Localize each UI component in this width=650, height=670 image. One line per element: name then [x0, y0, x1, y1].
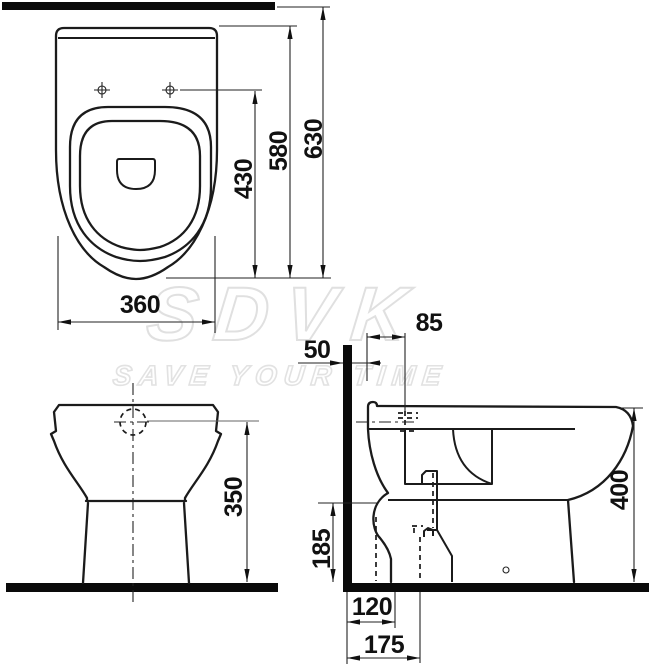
dim-185: 185	[308, 503, 336, 582]
dim-label-630: 630	[300, 119, 328, 159]
technical-drawing-page: SDVK SAVE YOUR TIME	[0, 0, 650, 670]
dim-350: 350	[220, 422, 250, 582]
dim-label-580: 580	[265, 131, 293, 171]
pedestal-hole-icon	[503, 567, 509, 573]
watermark-tagline: SAVE YOUR TIME	[111, 360, 449, 391]
flush-channel-box	[405, 429, 492, 484]
dim-label-175: 175	[364, 631, 405, 659]
floor-bar-side-view	[343, 583, 649, 592]
dim-label-350: 350	[220, 477, 248, 517]
dim-175: 175	[347, 631, 420, 661]
toilet-body-front-view	[51, 405, 221, 501]
dim-label-185: 185	[308, 528, 336, 569]
dim-430: 430	[230, 91, 258, 278]
drain-outline	[117, 159, 155, 189]
pedestal-front-view	[83, 503, 189, 583]
dim-label-85: 85	[416, 309, 443, 337]
fixing-hole-right-icon	[162, 82, 178, 98]
bowl-rim-outline	[80, 121, 200, 250]
front-view: 350	[6, 383, 278, 604]
toilet-dimension-drawing: SDVK SAVE YOUR TIME	[0, 0, 650, 670]
wall-bar-side-view	[343, 345, 352, 585]
dim-label-430: 430	[230, 159, 258, 199]
fixing-hole-left-icon	[94, 82, 110, 98]
side-view: 50 85 400 185 120	[298, 309, 649, 664]
dim-label-360: 360	[120, 291, 160, 319]
wall-bar-top-view	[2, 2, 275, 10]
dim-120: 120	[347, 593, 395, 625]
dim-label-120: 120	[352, 593, 392, 621]
dim-630: 630	[300, 7, 328, 278]
dim-580: 580	[265, 26, 293, 278]
floor-bar-front-view	[6, 583, 278, 592]
watermark-brand: SDVK	[143, 272, 427, 357]
dim-label-400: 400	[606, 470, 634, 510]
watermark: SDVK SAVE YOUR TIME	[111, 272, 449, 391]
bowl-interior-curve	[453, 429, 492, 484]
dim-label-50: 50	[304, 336, 331, 364]
